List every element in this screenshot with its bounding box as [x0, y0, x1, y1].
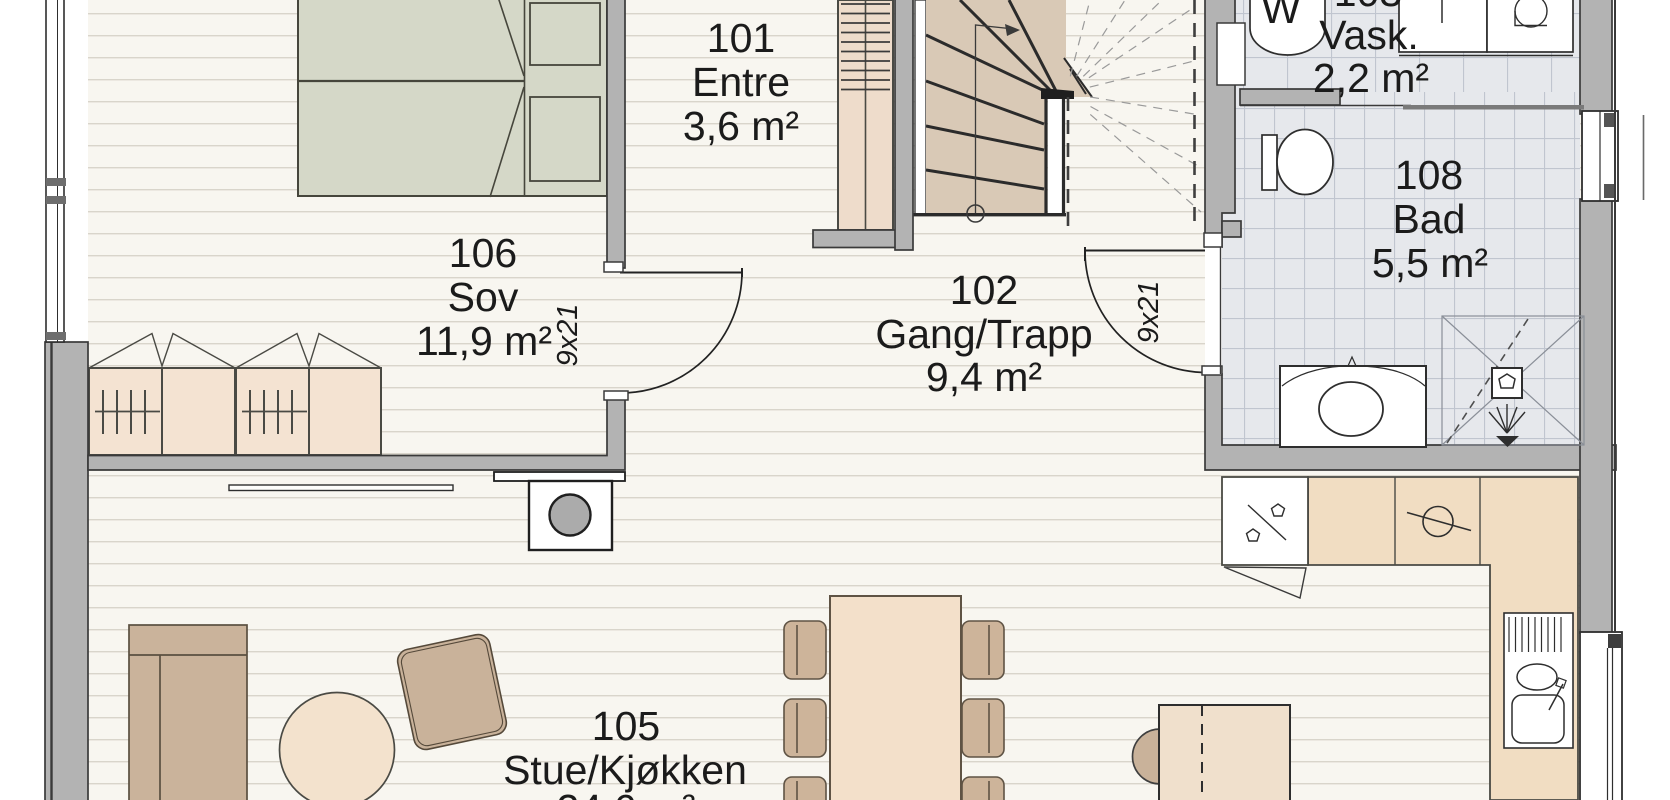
svg-text:W: W	[1261, 0, 1301, 32]
svg-text:Entre: Entre	[692, 59, 790, 105]
svg-text:9,4 m²: 9,4 m²	[926, 354, 1042, 400]
svg-text:11,9 m²: 11,9 m²	[416, 318, 552, 364]
svg-text:9x21: 9x21	[552, 304, 584, 367]
svg-text:105: 105	[592, 703, 660, 749]
svg-text:106: 106	[449, 230, 517, 276]
svg-text:5,5 m²: 5,5 m²	[1372, 240, 1488, 286]
svg-text:2,2 m²: 2,2 m²	[1313, 55, 1429, 101]
svg-text:102: 102	[950, 267, 1018, 313]
svg-text:9x21: 9x21	[1133, 281, 1165, 344]
svg-text:24,6 m²: 24,6 m²	[557, 786, 696, 800]
svg-text:Vask.: Vask.	[1319, 12, 1419, 58]
svg-text:108: 108	[1395, 152, 1463, 198]
svg-text:101: 101	[707, 15, 775, 61]
svg-text:Gang/Trapp: Gang/Trapp	[875, 311, 1092, 357]
svg-text:Sov: Sov	[448, 274, 519, 320]
svg-text:3,6 m²: 3,6 m²	[683, 103, 799, 149]
svg-text:Bad: Bad	[1393, 196, 1466, 242]
